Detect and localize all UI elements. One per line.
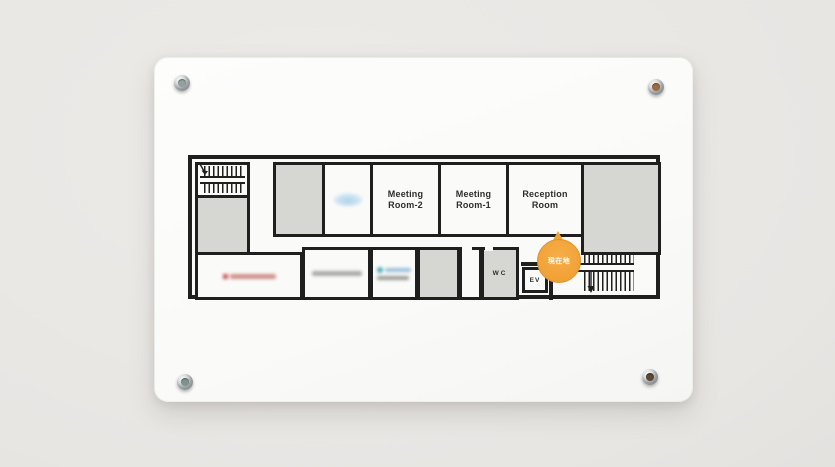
elevator-label: EV <box>530 277 541 284</box>
standoff-screw-top-left <box>174 75 190 91</box>
room-wc: WC <box>481 247 519 300</box>
wc-label: WC <box>493 270 508 277</box>
room-gray-left <box>195 195 250 255</box>
tenant-logo-blue <box>333 193 363 206</box>
tenant-room-gray-text <box>302 247 371 300</box>
door-gap <box>462 245 472 251</box>
stairwell-room-left <box>195 162 250 198</box>
reception-room-label-line2: Room <box>522 200 567 211</box>
room-gray-right <box>581 162 661 255</box>
room-meeting-1: Meeting Room-1 <box>438 162 509 237</box>
door-gap <box>485 245 493 251</box>
room-reception: Reception Room <box>506 162 584 237</box>
room-gray-top-1 <box>273 162 325 237</box>
room-gray-bottom <box>417 247 460 300</box>
tenant-logo-teal <box>377 267 411 280</box>
wall-background: Meeting Room-2 Meeting Room-1 Reception … <box>0 0 835 467</box>
room-meeting-2: Meeting Room-2 <box>370 162 441 237</box>
tenant-room-red <box>195 252 303 300</box>
standoff-screw-bottom-left <box>177 374 193 390</box>
meeting-room-2-label-line2: Room-2 <box>388 200 423 211</box>
tenant-logo-gray <box>312 271 362 276</box>
meeting-room-2-label-line1: Meeting <box>388 189 423 200</box>
standoff-screw-bottom-right <box>642 369 658 385</box>
stairs-direction-arrow-icon <box>582 269 600 297</box>
tenant-room-teal <box>370 247 418 300</box>
meeting-room-1-label-line2: Room-1 <box>456 200 491 211</box>
you-are-here-marker: 現在地 <box>537 239 581 283</box>
small-utility-room <box>459 247 482 300</box>
stairs-direction-arrow-icon <box>197 163 213 179</box>
tenant-room-blue <box>322 162 373 237</box>
reception-room-label-line1: Reception <box>522 189 567 200</box>
standoff-screw-top-right <box>648 79 664 95</box>
floor-plan: Meeting Room-2 Meeting Room-1 Reception … <box>188 155 660 299</box>
meeting-room-1-label-line1: Meeting <box>456 189 491 200</box>
you-are-here-label: 現在地 <box>548 256 571 266</box>
tenant-logo-red <box>223 274 276 279</box>
acrylic-sign-plate: Meeting Room-2 Meeting Room-1 Reception … <box>154 57 693 402</box>
